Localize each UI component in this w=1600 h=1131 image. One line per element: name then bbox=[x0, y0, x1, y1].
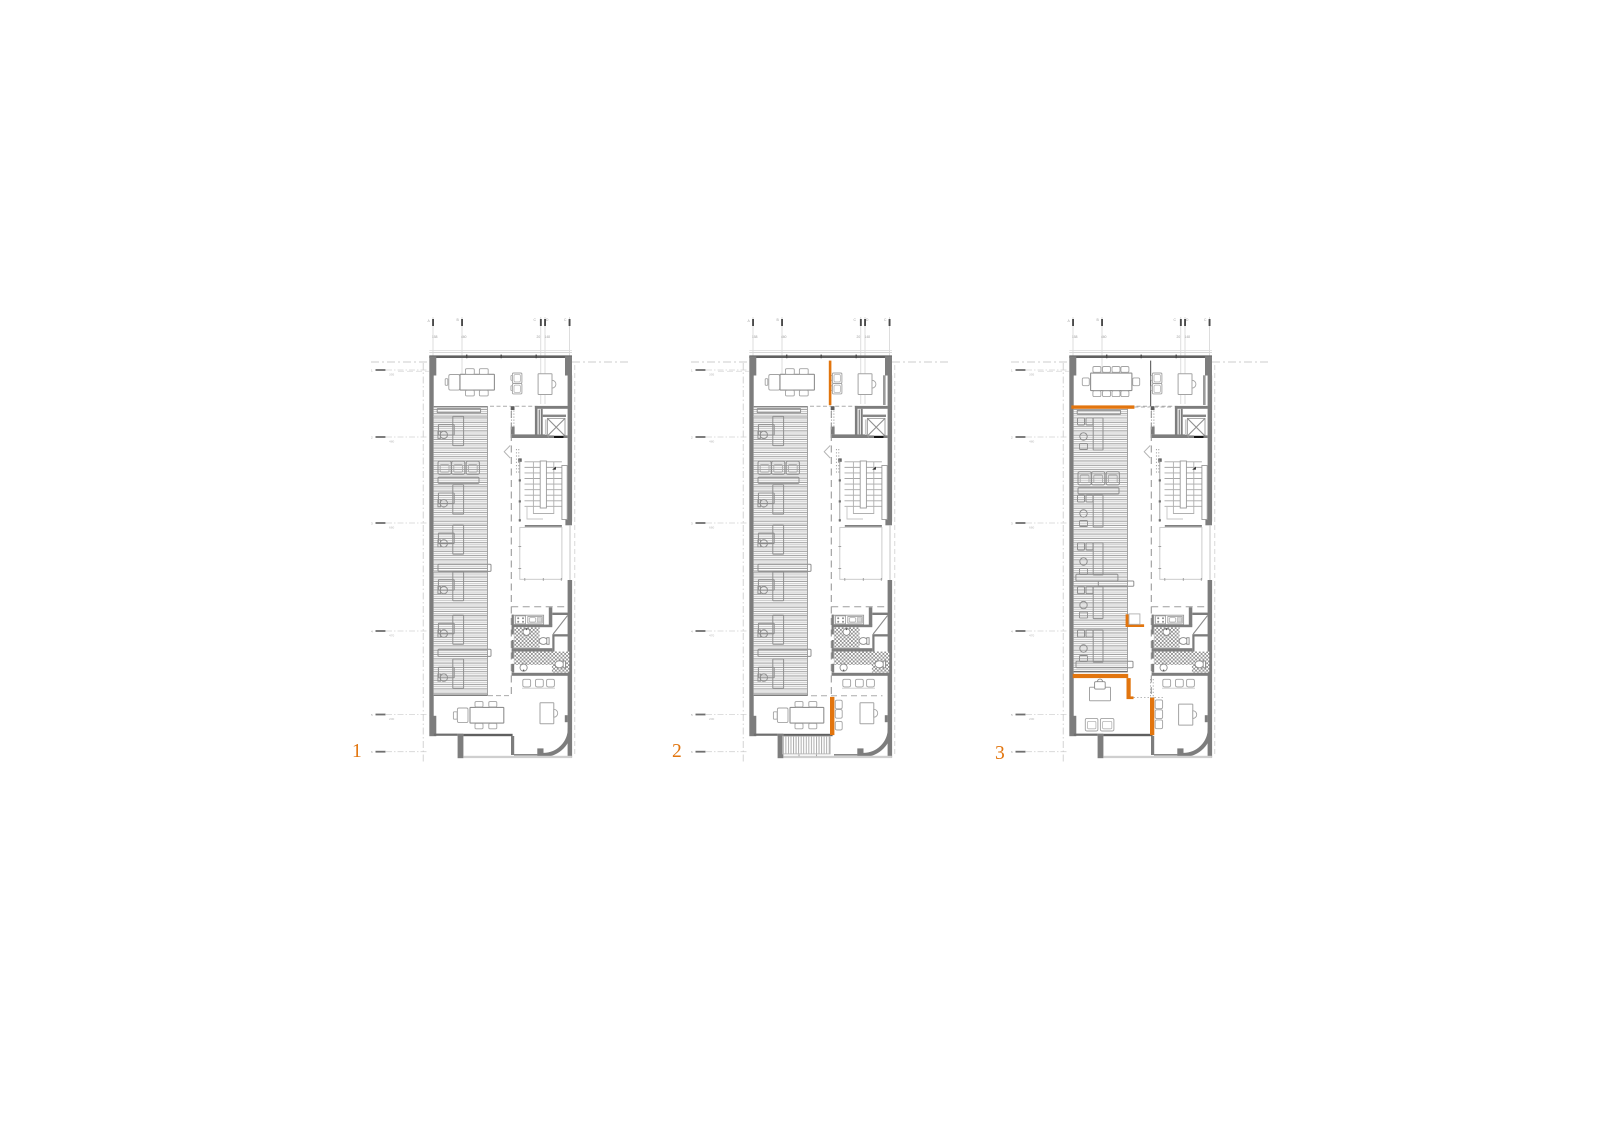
svg-text:2: 2 bbox=[672, 741, 682, 762]
svg-text:148: 148 bbox=[865, 335, 871, 339]
svg-text:158: 158 bbox=[1072, 335, 1078, 339]
svg-text:158: 158 bbox=[432, 335, 438, 339]
svg-text:148: 148 bbox=[545, 335, 551, 339]
svg-text:20: 20 bbox=[857, 335, 861, 339]
svg-text:3: 3 bbox=[995, 743, 1005, 764]
svg-text:460: 460 bbox=[781, 335, 787, 339]
svg-text:200: 200 bbox=[709, 717, 714, 721]
svg-text:480: 480 bbox=[1029, 440, 1034, 444]
svg-text:480: 480 bbox=[389, 440, 394, 444]
svg-text:395: 395 bbox=[1029, 373, 1034, 377]
svg-text:20: 20 bbox=[537, 335, 541, 339]
svg-text:660: 660 bbox=[389, 526, 394, 530]
svg-text:395: 395 bbox=[709, 373, 714, 377]
svg-text:158: 158 bbox=[752, 335, 758, 339]
svg-text:480: 480 bbox=[709, 440, 714, 444]
svg-text:460: 460 bbox=[461, 335, 467, 339]
svg-text:1: 1 bbox=[352, 741, 362, 762]
svg-text:660: 660 bbox=[1029, 526, 1034, 530]
svg-text:660: 660 bbox=[709, 526, 714, 530]
svg-text:200: 200 bbox=[1029, 717, 1034, 721]
svg-text:200: 200 bbox=[389, 717, 394, 721]
svg-text:470: 470 bbox=[709, 634, 714, 638]
svg-text:148: 148 bbox=[1185, 335, 1191, 339]
svg-text:470: 470 bbox=[1029, 634, 1034, 638]
svg-text:460: 460 bbox=[1101, 335, 1107, 339]
svg-text:395: 395 bbox=[389, 373, 394, 377]
svg-text:470: 470 bbox=[389, 634, 394, 638]
svg-text:20: 20 bbox=[1177, 335, 1181, 339]
